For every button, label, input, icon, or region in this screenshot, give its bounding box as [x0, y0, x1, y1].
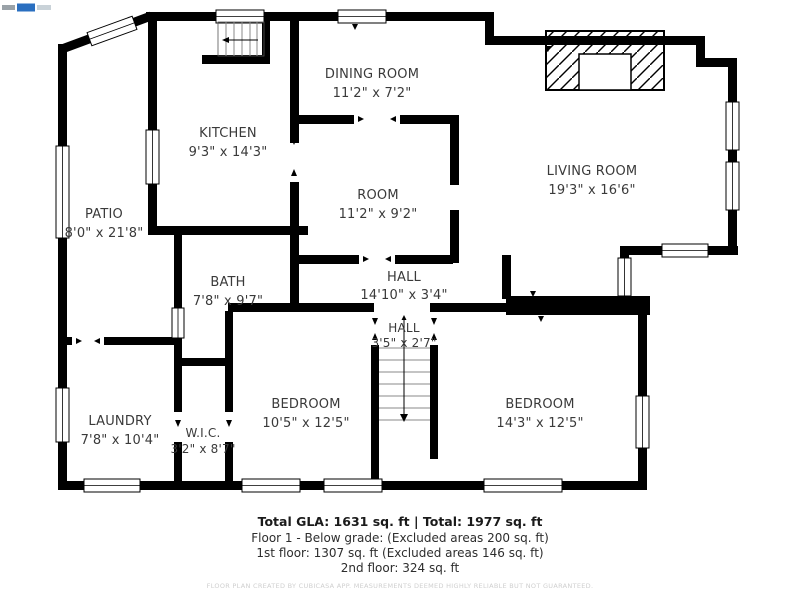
disclaimer-text: FLOOR PLAN CREATED BY CUBICASA APP. MEAS… [0, 582, 800, 590]
first-floor-line: 1st floor: 1307 sq. ft (Excluded areas 1… [0, 546, 800, 560]
room-dims-bedroom2: 14'3" x 12'5" [496, 416, 583, 431]
total-gla-line: Total GLA: 1631 sq. ft | Total: 1977 sq.… [0, 514, 800, 529]
room-label-laundry: LAUNDRY [88, 414, 151, 429]
room-dims-dining: 11'2" x 7'2" [333, 86, 412, 101]
room-label-dining: DINING ROOM [325, 67, 419, 82]
room-label-bedroom2: BEDROOM [505, 397, 574, 412]
room-label-patio: PATIO [85, 207, 123, 222]
second-floor-line: 2nd floor: 324 sq. ft [0, 561, 800, 575]
floor1-line: Floor 1 - Below grade: (Excluded areas 2… [0, 531, 800, 545]
room-label-hall: HALL [387, 270, 422, 285]
room-label-room: ROOM [357, 188, 399, 203]
cubicasa-watermark-logo [2, 2, 58, 14]
room-dims-hall: 14'10" x 3'4" [360, 288, 447, 303]
area-summary: Total GLA: 1631 sq. ft | Total: 1977 sq.… [0, 514, 800, 590]
door-opening-arrows [76, 24, 551, 427]
room-dims-wic: 3'2" x 8'7" [170, 442, 235, 456]
room-dims-patio: 8'0" x 21'8" [65, 226, 144, 241]
room-label-wic: W.I.C. [185, 426, 220, 440]
room-dims-bedroom1: 10'5" x 12'5" [262, 416, 349, 431]
room-label-bath: BATH [210, 275, 245, 290]
room-label-living: LIVING ROOM [547, 164, 638, 179]
room-dims-laundry: 7'8" x 10'4" [81, 433, 160, 448]
room-dims-kitchen: 9'3" x 14'3" [189, 145, 268, 160]
floor-plan-page: PATIO 8'0" x 21'8" KITCHEN 9'3" x 14'3" … [0, 0, 800, 600]
upper-staircase [218, 22, 264, 56]
room-dims-bath: 7'8" x 9'7" [193, 294, 263, 309]
room-label-bedroom1: BEDROOM [271, 397, 340, 412]
floor-plan-drawing: PATIO 8'0" x 21'8" KITCHEN 9'3" x 14'3" … [0, 0, 800, 510]
room-dims-hall2: 3'5" x 2'7" [371, 336, 436, 350]
fireplace [546, 31, 664, 90]
room-dims-room: 11'2" x 9'2" [339, 207, 418, 222]
room-label-kitchen: KITCHEN [199, 126, 257, 141]
room-label-hall2: HALL [388, 321, 420, 335]
room-dims-living: 19'3" x 16'6" [548, 183, 635, 198]
